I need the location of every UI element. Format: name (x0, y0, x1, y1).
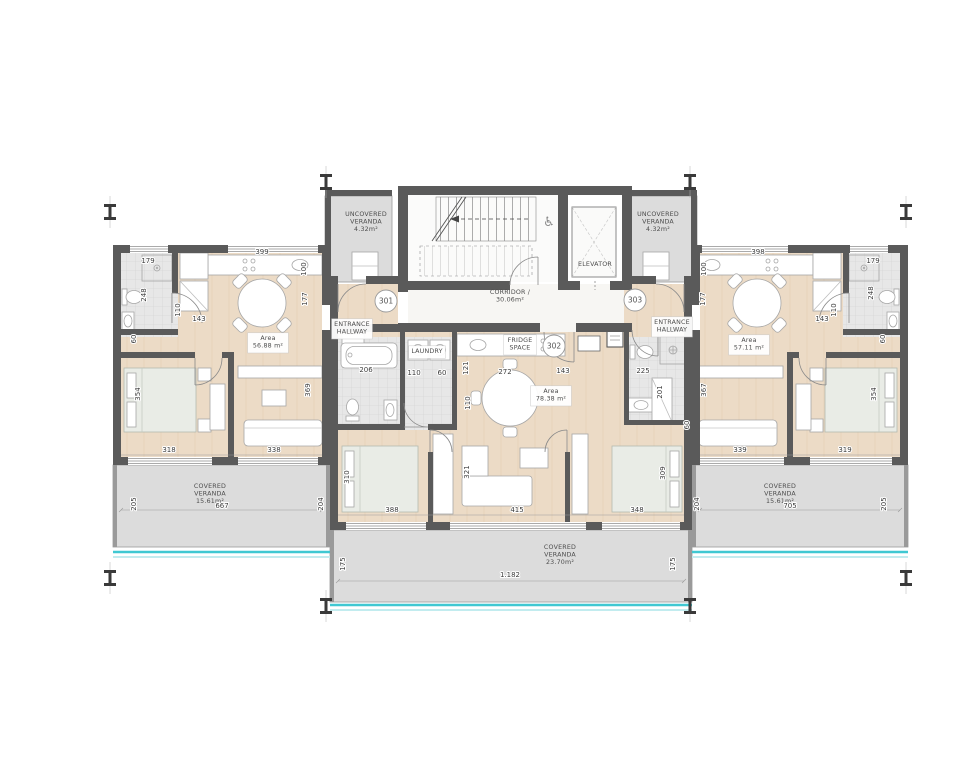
dimension-label: 60 (130, 335, 138, 344)
unit-badge-303: 303 (624, 289, 646, 311)
sink-301 (122, 312, 134, 330)
svg-text:ELEVATOR: ELEVATOR (578, 261, 612, 268)
vanity-303-inner (628, 398, 654, 412)
window (130, 245, 168, 253)
dimension-label: 143 (556, 367, 569, 375)
dimension-label: 201 (656, 385, 664, 398)
linen-closet-303 (652, 378, 672, 422)
wardrobe-301 (210, 384, 225, 430)
wheelchair-icon: ♿ (543, 215, 555, 230)
dimension-label: 206 (359, 366, 373, 374)
dimension-label: 309 (659, 466, 667, 479)
sofa-303 (699, 420, 777, 446)
dimension-label: 143 (192, 315, 205, 323)
dimension-label: 204 (693, 497, 701, 511)
dimension-label: 110 (174, 303, 182, 316)
window (602, 522, 680, 530)
dimension-label: 398 (751, 248, 764, 256)
elevator-label: ELEVATOR (578, 261, 612, 268)
floor-plan-page: ♿ (0, 0, 979, 764)
dimension-label: 388 (385, 506, 398, 514)
window (810, 457, 892, 465)
fire-hose-cabinet (578, 336, 600, 351)
window (238, 457, 318, 465)
dimension-label: 369 (304, 383, 312, 396)
svg-text:303: 303 (628, 296, 643, 305)
svg-text:ENTRANCEHALLWAY: ENTRANCEHALLWAY (654, 319, 690, 334)
sideboard-303 (699, 366, 783, 378)
svg-text:301: 301 (379, 297, 394, 306)
covered-veranda-middle-label: COVEREDVERANDA23.70m² (544, 544, 576, 566)
svg-text:ENTRANCEHALLWAY: ENTRANCEHALLWAY (334, 321, 370, 336)
dimension-label: 319 (838, 446, 851, 454)
veranda-unit-left (352, 252, 378, 280)
column-marker (104, 196, 116, 228)
fridge-space-label: FRIDGESPACE (504, 335, 537, 355)
dimension-label: 310 (343, 470, 351, 483)
bed-302-left (342, 446, 418, 512)
dimension-label: 121 (462, 361, 470, 374)
dimension-label: 175 (339, 557, 347, 570)
floor-plan-canvas: ♿ (0, 0, 979, 764)
window (700, 457, 784, 465)
entrance-hallway-301-label: ENTRANCEHALLWAY (332, 319, 373, 339)
wardrobe-303 (796, 384, 811, 430)
window (850, 245, 888, 253)
veranda-unit-right (643, 252, 669, 280)
dimension-label: 248 (867, 286, 875, 299)
window (450, 522, 586, 530)
dimension-label: 318 (162, 446, 175, 454)
svg-text:LAUNDRY: LAUNDRY (411, 348, 442, 355)
sideboard-301 (238, 366, 322, 378)
dimension-label: 354 (134, 387, 142, 401)
dimension-label: 1.182 (500, 571, 520, 579)
dimension-label: 348 (630, 506, 643, 514)
dimension-label: 60 (438, 369, 447, 377)
unit-badge-302: 302 (543, 335, 565, 357)
svg-text:FRIDGESPACE: FRIDGESPACE (508, 337, 533, 352)
bed-302-right (612, 446, 682, 512)
dimension-label: 321 (463, 465, 471, 478)
dimension-label: 339 (733, 446, 746, 454)
toilet-302 (346, 399, 359, 421)
dimension-label: 100 (300, 262, 308, 275)
dimension-label: 204 (317, 497, 325, 511)
column-marker (900, 562, 912, 594)
sofa-301 (244, 420, 322, 446)
dimension-label: 179 (141, 257, 154, 265)
dimension-label: 705 (783, 502, 796, 510)
column-marker (900, 196, 912, 228)
dimension-label: 399 (255, 248, 268, 256)
dimension-label: 179 (866, 257, 879, 265)
dimension-label: 60 (879, 335, 887, 344)
dimension-label: 272 (498, 368, 511, 376)
covered-veranda-right-slab (692, 465, 908, 547)
dining-table-303 (727, 273, 788, 334)
window (346, 522, 426, 530)
dimension-label: 667 (215, 502, 228, 510)
dimension-label: 248 (140, 288, 148, 301)
sink-303-top (887, 312, 899, 330)
column-marker (104, 562, 116, 594)
coffee-table-301 (262, 390, 286, 406)
dimension-label: 175 (669, 557, 677, 570)
toilet-303-inner (630, 345, 653, 359)
dimension-label: 225 (636, 367, 649, 375)
unit-badge-301: 301 (375, 290, 397, 312)
wardrobe-302-right (572, 434, 588, 514)
apartment-301-area-label: Area56.88 m² (248, 333, 289, 353)
dimension-label: 110 (407, 369, 420, 377)
dimension-label: 110 (464, 396, 472, 409)
window (128, 457, 212, 465)
dimension-label: 205 (880, 497, 888, 510)
coffee-table-302 (520, 448, 548, 468)
dimension-label: 110 (830, 303, 838, 316)
dimension-label: 415 (510, 506, 523, 514)
covered-veranda-middle-slab (330, 530, 692, 602)
dining-table-301 (232, 273, 293, 334)
dimension-label: 367 (700, 383, 708, 396)
bed-303 (825, 368, 897, 432)
sink-302 (384, 400, 397, 420)
bathtub-302 (341, 343, 397, 368)
dimension-label: 143 (815, 315, 828, 323)
wardrobe-302-left (433, 434, 453, 514)
dimension-label: 177 (699, 292, 707, 305)
svg-text:COVEREDVERANDA23.70m²: COVEREDVERANDA23.70m² (544, 544, 576, 566)
dimension-label: 205 (130, 497, 138, 510)
apartment-303-area-label: Area57.11 m² (729, 335, 770, 355)
dimension-label: 338 (267, 446, 280, 454)
hall-cabinet-303 (607, 331, 623, 347)
window (228, 245, 318, 253)
apartment-302-area-label: Area78.38 m² (531, 386, 572, 406)
dimension-label: 60 (683, 421, 691, 430)
laundry-label: LAUNDRY (409, 346, 446, 359)
kitchen-counter-303 (699, 255, 813, 275)
entrance-hallway-303-label: ENTRANCEHALLWAY (652, 317, 693, 337)
dimension-label: 100 (700, 262, 708, 275)
window (702, 245, 788, 253)
dimension-label: 177 (301, 292, 309, 305)
svg-text:302: 302 (547, 342, 562, 351)
dimension-label: 354 (870, 387, 878, 401)
